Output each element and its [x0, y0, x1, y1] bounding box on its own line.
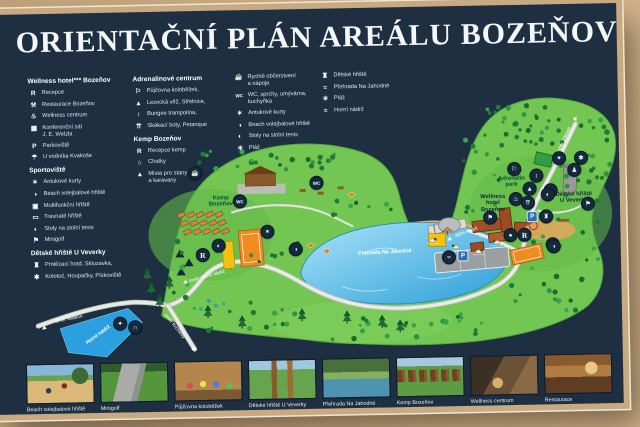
camp-cabins [177, 211, 230, 236]
legend-label: Recepce [39, 90, 65, 97]
board-canvas: ORIENTAČNÍ PLÁN AREÁLU BOZEŇOV [0, 3, 624, 415]
legend-label: Skákací boty, Petanque [144, 122, 207, 130]
legend-label: Stoly na stolní tenis [246, 132, 298, 140]
photo-wellness: Wellness centrum [470, 355, 539, 405]
multisport-icon: ▣ [30, 203, 41, 210]
photo-restaurant-image [544, 353, 613, 394]
legend-item: ⚐Půjčovna koloběžek, [133, 86, 232, 95]
beach-volleyball-icon: ◑ [234, 122, 245, 129]
upper-reservoir-icon: ≈ [320, 107, 331, 114]
legend-item: ▣Multifunkční hřiště [30, 201, 133, 210]
legend-label: Prolézací hrad, Skluzavka, [42, 261, 112, 269]
legend-item: ◐Stoly na stolní tenis [235, 132, 321, 141]
legend-label: Antukové kurty [245, 109, 286, 116]
photo-restaurant: Restaurace [544, 353, 613, 403]
legend-label: Multifunkční hřiště [41, 202, 90, 210]
legend-item: ☂U vodníka Kvakoše [29, 153, 132, 162]
legend-label: Přehrada Na Jahodné [331, 83, 390, 91]
legend-item: ▲Místa pro stany a karavany [134, 169, 233, 184]
camp-reception-icon: R [134, 148, 145, 155]
legend-item: ✶Antukové kurty [234, 109, 320, 118]
jump-boots-icon: ⇈ [133, 123, 144, 130]
legend-label: Restaurace Bozeňov [39, 101, 95, 109]
photo-beach-volleyball: Beach volejbalové hřiště [26, 363, 95, 413]
legend-heading: Wellness hotel*** Bozeňov [27, 76, 130, 85]
legend-item: WCWC, sprchy, umývárna, kuchyňka [234, 91, 320, 106]
photo-reservoir: Přehrada Na Jahodné [322, 357, 391, 407]
wc-icon: WC [234, 92, 245, 99]
legend-label: Rychlé občerstvení a nápoje [244, 73, 296, 87]
photo-camp: Kemp Bozeňov [396, 356, 465, 406]
orientation-board: ORIENTAČNÍ PLÁN AREÁLU BOZEŇOV [0, 3, 624, 415]
legend-item: ✶Antukové kurty [29, 178, 132, 187]
legend-item: ☀Pláž [320, 94, 404, 103]
photo-minigolf: Minigolf [100, 362, 169, 412]
playground-icon: ♜ [319, 72, 330, 79]
legend-label: Stoly na stolní tenis [41, 225, 93, 233]
carousel-icon: ✱ [31, 274, 42, 281]
legend-label: Beach volejbalové hřiště [41, 190, 106, 198]
legend-label: Beach volejbalové hřiště [245, 121, 310, 129]
legend-item: ♨Wellness centrum [28, 112, 131, 121]
legend-item: RRecepce kemp [134, 146, 233, 155]
photo-camp-image [396, 356, 465, 397]
legend-label: Minigolf [41, 237, 64, 244]
bungee-icon: ↕ [133, 111, 144, 118]
clay-court-icon: ✶ [234, 110, 245, 117]
legend-item: ▦Konferenční sál J. E. Welzla [28, 123, 131, 138]
photo-scooter-rental: Půjčovna koloběžek [174, 360, 243, 410]
waterman-icon: ☂ [29, 154, 40, 161]
legend-item: ◐Stoly na stolní tenis [30, 224, 133, 233]
legend-label: Půjčovna koloběžek, [144, 87, 199, 95]
wellness-icon: ♨ [28, 113, 39, 120]
table-tennis-icon: ◐ [30, 226, 41, 233]
legend-label: Wellness centrum [39, 112, 87, 120]
camp-yellow-court [222, 241, 235, 269]
legend-label: Bungee trampolína, [144, 110, 197, 118]
legend-label: Travnaté hřiště [41, 213, 82, 220]
beach-icon: ☀ [235, 145, 246, 152]
legend-label: U vodníka Kvakoše [40, 153, 92, 161]
legend-item: PParkoviště [29, 141, 132, 150]
climbing-castle-icon: ♜ [31, 262, 42, 269]
beach-icon: ☀ [320, 96, 331, 103]
parking-icon: P [29, 143, 40, 150]
grass-field-icon: ▭ [30, 214, 41, 221]
cabins-icon: ⌂ [134, 159, 145, 166]
climbing-wall-icon: ▲ [133, 100, 144, 107]
legend-label: Parkoviště [40, 142, 70, 149]
legend-item: ⚑Minigolf [30, 236, 133, 245]
legend-item: ⇈Skákací boty, Petanque [133, 121, 232, 130]
legend-item: ◑Beach volejbalové hřiště [234, 120, 320, 129]
restaurant-icon: ⚒ [28, 102, 39, 109]
legend-label: Kolotoč, Houpačky, Pískoviště [42, 273, 121, 281]
conference-icon: ▦ [28, 125, 39, 132]
legend-heading: Adrenalinové centrum [132, 74, 231, 83]
legend-item: ☀Pláž [235, 144, 321, 153]
legend-item: ▭Travnaté hřiště [30, 212, 133, 221]
legend-label: Recepce kemp [145, 147, 186, 155]
legend-label: Pláž [331, 95, 345, 102]
legend-item: ✱Kolotoč, Houpačky, Pískoviště [31, 272, 134, 281]
photo-playground: Dětské hřiště U Veverky [248, 359, 317, 409]
photo-reservoir-image [322, 357, 391, 398]
legend-item: RRecepce [28, 88, 131, 97]
legend-heading: Sportoviště [29, 166, 132, 175]
legend-item: ◑Beach volejbalové hřiště [30, 189, 133, 198]
legend-label: Horní nádrž [331, 107, 364, 114]
legend-label: Pláž [246, 145, 260, 152]
legend-item: ≈Přehrada Na Jahodné [320, 83, 404, 92]
legend-label: WC, sprchy, umývárna, kuchyňka [245, 91, 307, 106]
minigolf-icon: ⚑ [30, 237, 41, 244]
legend-item: ≈Horní nádrž [320, 106, 404, 115]
legend-item: ⌂Chatky [134, 158, 233, 167]
legend-label: Antukové kurty [40, 179, 81, 186]
reservoir-icon: ≈ [320, 84, 331, 91]
tents-icon: ▲ [134, 171, 145, 178]
photo-wellness-image [470, 355, 539, 396]
legend-label: Konferenční sál J. E. Welzla [39, 124, 82, 138]
legend-label: Lezecká věž, Střelnice, [144, 98, 206, 106]
legend-item: ♜Dětské hřiště [319, 71, 403, 80]
beach-volleyball-icon: ◑ [30, 191, 41, 198]
legend-heading: Dětské hřiště U Veverky [31, 249, 134, 258]
photo-scooter-rental-image [174, 360, 243, 401]
photo-minigolf-image [100, 362, 169, 403]
legend-item: ▲Lezecká věž, Střelnice, [133, 98, 232, 107]
legend-item: ⚒Restaurace Bozeňov [28, 100, 131, 109]
legend-label: Chatky [145, 159, 166, 166]
legend-item: ♜Prolézací hrad, Skluzavka, [31, 261, 134, 270]
legend-heading: Kemp Bozeňov [134, 134, 233, 143]
refreshments-icon: ☕ [233, 74, 244, 81]
legend-item: ↕Bungee trampolína, [133, 110, 232, 119]
clay-court-icon: ✶ [29, 179, 40, 186]
table-tennis-icon: ◐ [235, 133, 246, 140]
legend-label: Dětské hřiště [330, 72, 366, 79]
legend-item: ☕Rychlé občerstvení a nápoje [233, 73, 319, 88]
photo-beach-volleyball-image [26, 363, 95, 404]
scooter-icon: ⚐ [133, 88, 144, 95]
legend-label: Místa pro stany a karavany [145, 170, 187, 184]
photo-playground-image [248, 359, 317, 400]
reception-icon: R [28, 90, 39, 97]
